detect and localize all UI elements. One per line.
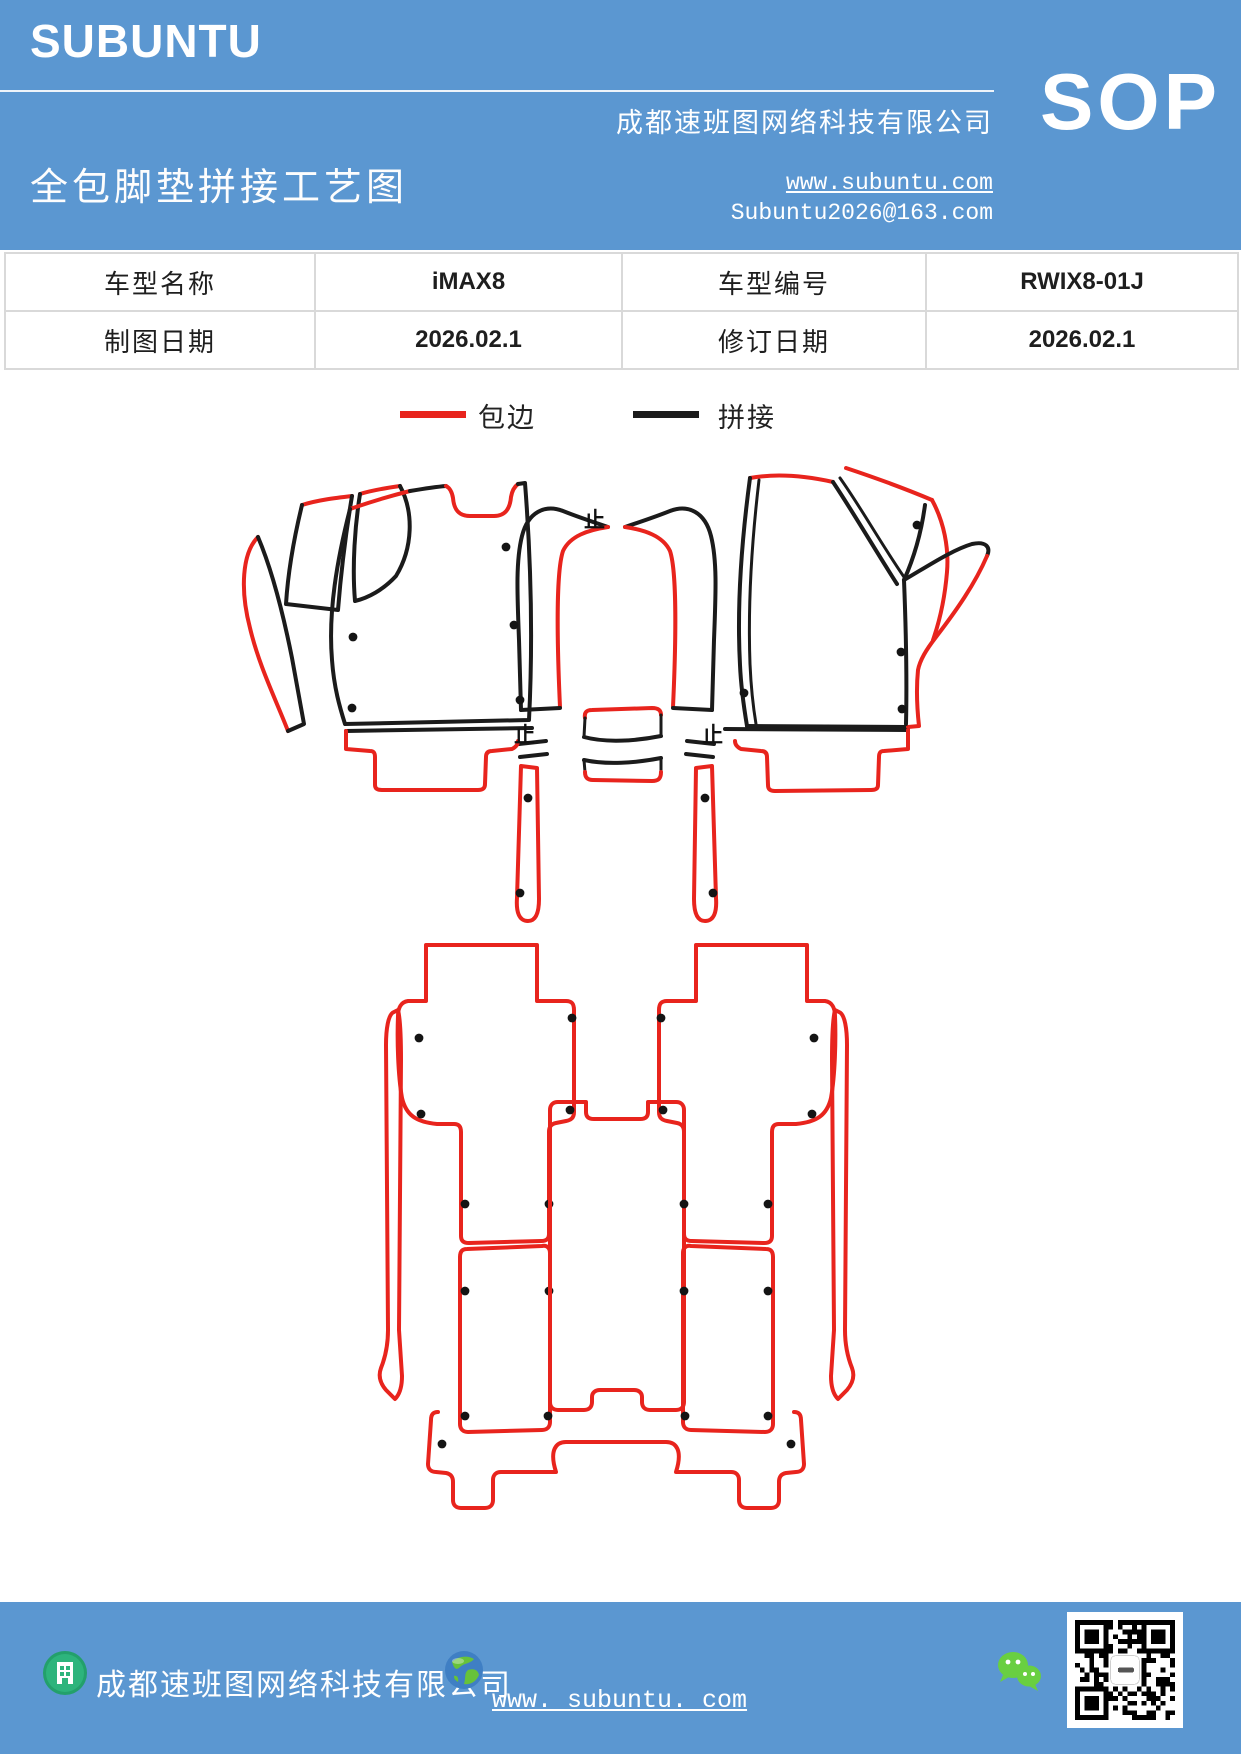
header-website-link[interactable]: www.subuntu.com [786, 170, 993, 196]
svg-text:止: 止 [514, 723, 535, 747]
table-cell-code-value: RWIX8-01J [927, 254, 1239, 312]
footer-website-link[interactable]: www. subuntu. com [492, 1686, 747, 1715]
sop-page: SUBUNTU 成都速班图网络科技有限公司 SOP 全包脚垫拼接工艺图 www.… [0, 0, 1241, 1754]
subuntu-logo: SUBUNTU [30, 14, 262, 68]
svg-text:止: 止 [702, 723, 723, 747]
table-cell-drawdate-label: 制图日期 [6, 312, 316, 370]
header-email-text: Subuntu2026@163.com [731, 200, 993, 226]
qr-code [1067, 1612, 1183, 1728]
header-company-name: 成都速班图网络科技有限公司 [616, 101, 993, 140]
table-cell-revdate-value: 2026.02.1 [927, 312, 1239, 370]
wechat-icon [993, 1648, 1047, 1698]
header-banner: SUBUNTU 成都速班图网络科技有限公司 SOP 全包脚垫拼接工艺图 www.… [0, 0, 1241, 250]
spec-table: 车型名称 iMAX8 车型编号 RWIX8-01J 制图日期 2026.02.1… [4, 252, 1239, 370]
table-cell-model-label: 车型名称 [6, 254, 316, 312]
page-title: 全包脚垫拼接工艺图 [30, 156, 408, 211]
svg-text:止: 止 [584, 508, 605, 532]
table-cell-revdate-label: 修订日期 [623, 312, 927, 370]
globe-icon [444, 1650, 484, 1690]
legend-label-splice: 拼接 [718, 396, 776, 435]
legend-label-edge-binding: 包边 [478, 396, 536, 435]
building-icon [42, 1650, 88, 1696]
legend-swatch-edge-binding [400, 411, 466, 418]
table-cell-drawdate-value: 2026.02.1 [316, 312, 623, 370]
header-divider [0, 90, 994, 92]
table-cell-model-value: iMAX8 [316, 254, 623, 312]
legend-swatch-splice [633, 411, 699, 418]
table-cell-code-label: 车型编号 [623, 254, 927, 312]
sop-label: SOP [1040, 62, 1221, 142]
